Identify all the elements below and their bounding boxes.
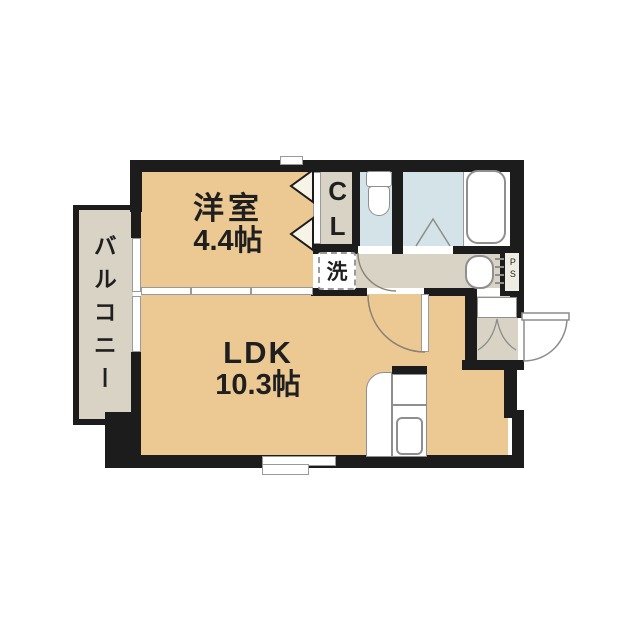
wall-left-mid2 — [131, 352, 141, 416]
wall-right-jog — [504, 370, 517, 414]
closet-label: CL — [323, 176, 352, 242]
bathroom-floor — [402, 166, 463, 246]
wall-kitchen-stub — [392, 366, 427, 374]
room-partition-slider — [141, 287, 313, 295]
toilet-bowl-icon — [368, 186, 390, 216]
washing-machine-pan: 洗 — [318, 252, 356, 290]
balcony-rail-top — [75, 205, 133, 210]
kitchen-counter-divider — [393, 404, 426, 406]
wall-bath-corridor — [453, 246, 504, 254]
closet-door-line — [313, 172, 321, 244]
slider-tick-1 — [190, 288, 192, 294]
balcony-window-lower — [132, 296, 141, 352]
western-room-name: 洋室 — [148, 192, 308, 226]
entrance-door-swing — [524, 318, 567, 361]
ldk-floor-right — [460, 370, 508, 456]
kitchen-panel — [366, 372, 392, 457]
ldk-door-leaf — [421, 294, 429, 352]
kitchen-sink-icon — [396, 417, 423, 455]
shoe-cabinet — [477, 297, 517, 318]
wall-ldk-entrance — [465, 288, 477, 366]
wall-left-mid1 — [131, 210, 141, 238]
wall-toilet-bath — [392, 160, 403, 254]
pipe-space-label: PS — [507, 257, 517, 289]
washing-machine-label: 洗 — [320, 261, 354, 284]
bathtub-icon — [466, 170, 506, 244]
wall-corridor-ldk-right — [424, 288, 466, 296]
ldk-name: LDK — [160, 336, 356, 370]
slider-tick-2 — [250, 288, 252, 294]
ldk-size: 10.3帖 — [160, 370, 356, 402]
entrance-door-leaf — [522, 313, 569, 320]
washbasin-icon — [465, 255, 494, 289]
wall-closet-toilet — [352, 166, 360, 246]
wall-right-lower — [512, 414, 524, 458]
balcony-rail-left — [73, 205, 79, 425]
bottom-window-pane2 — [262, 464, 309, 475]
top-wall-vent — [280, 156, 303, 165]
western-room-size: 4.4帖 — [148, 226, 308, 258]
floor-plan: 洗 洋室 4.4帖 LDK 10.3帖 バルコニー CL PS — [0, 0, 640, 640]
balcony-label: バルコニー — [90, 234, 115, 424]
balcony-window-upper — [132, 238, 141, 292]
basin-cabinet-hatch — [495, 258, 504, 288]
wall-top — [130, 160, 524, 172]
wall-left-upper — [130, 160, 142, 212]
toilet-tank-icon — [366, 171, 392, 187]
